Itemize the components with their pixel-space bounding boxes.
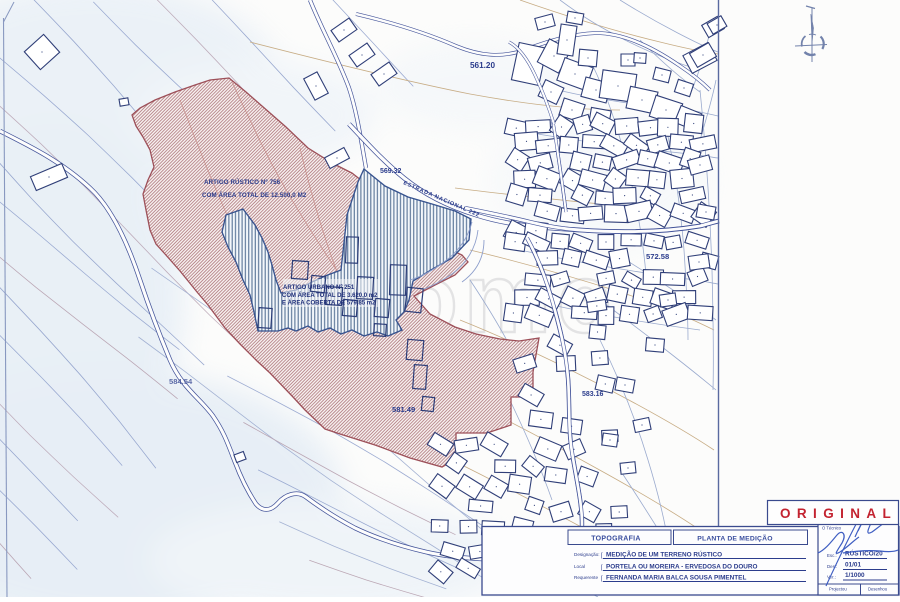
svg-text:COM ÁREA TOTAL DE 3.620,0 m2: COM ÁREA TOTAL DE 3.620,0 m2	[282, 292, 378, 299]
svg-text:561.20: 561.20	[470, 61, 495, 70]
svg-text:572.58: 572.58	[646, 252, 669, 261]
svg-text:O Técnico: O Técnico	[822, 526, 842, 531]
svg-text:ORIGINAL: ORIGINAL	[780, 506, 897, 521]
svg-text:Requerente: Requerente	[574, 575, 598, 580]
svg-text:569.32: 569.32	[380, 168, 402, 175]
svg-text:PLANTA DE MEDIÇÃO: PLANTA DE MEDIÇÃO	[697, 534, 773, 543]
svg-text:RÚSTICO/20: RÚSTICO/20	[845, 549, 883, 558]
svg-text:583.16: 583.16	[582, 391, 604, 398]
svg-text:584.54: 584.54	[169, 377, 193, 386]
svg-text:1/1000: 1/1000	[845, 572, 865, 579]
svg-text:Esc.:: Esc.:	[827, 553, 837, 558]
svg-text:ARTIGO RÚSTICO Nº 756: ARTIGO RÚSTICO Nº 756	[204, 179, 281, 186]
svg-text:01/01: 01/01	[845, 562, 861, 569]
svg-text:Local: Local	[574, 564, 585, 569]
svg-text:MEDIÇÃO DE UM TERRENO RÚSTICO: MEDIÇÃO DE UM TERRENO RÚSTICO	[606, 550, 722, 559]
svg-text:Projectou: Projectou	[829, 587, 847, 592]
svg-text:FERNANDA MARIA BALCA SOUSA PIM: FERNANDA MARIA BALCA SOUSA PIMENTEL	[606, 575, 746, 582]
svg-text:Designação:: Designação:	[574, 552, 600, 557]
svg-text:E ÁREA COBERTA DE 579,85 m2: E ÁREA COBERTA DE 579,85 m2	[282, 300, 376, 307]
svg-text:ARTIGO URBANO Nº 251: ARTIGO URBANO Nº 251	[283, 285, 355, 291]
svg-text:581.49: 581.49	[392, 405, 415, 414]
svg-text:TOPOGRAFIA: TOPOGRAFIA	[591, 536, 641, 543]
svg-text:COM ÁREA TOTAL DE 12.500,0 M2: COM ÁREA TOTAL DE 12.500,0 M2	[202, 192, 307, 199]
svg-text:PORTELA OU MOREIRA - ERVEDOSA: PORTELA OU MOREIRA - ERVEDOSA DO DOURO	[606, 564, 758, 571]
svg-text:Desenhou: Desenhou	[868, 587, 888, 592]
